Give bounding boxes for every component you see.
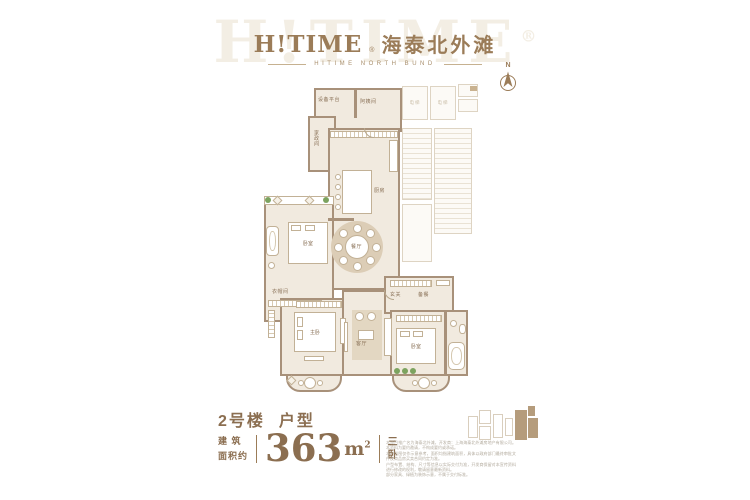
bathtub-inner [269,231,276,251]
wall [328,218,354,221]
area-unit-letter: m [344,438,364,460]
wall [444,312,447,374]
console-cabinet [390,280,432,287]
building-label: 2号楼 [218,407,265,431]
elevator-shaft: 电梯 [430,86,456,120]
area-caption-line1: 建 筑 [218,434,248,448]
balcony-table [418,377,430,389]
bedroom-right-label: 卧室 [397,329,435,363]
area-caption: 建 筑 面积约 [218,434,248,463]
toilet [268,262,275,269]
brand-logo: H!TIME ® 海泰北外滩 [0,29,750,58]
bedroom-left-label: 卧室 [289,223,327,263]
master-bedroom-label: 主卧 [295,313,335,351]
elevator-label: 电梯 [410,100,421,106]
area-info: 建 筑 面积约 363 m2 三 卧 [218,432,398,465]
chair [339,229,348,238]
brand-subtitle: HITIME NORTH BUND [0,61,750,67]
shoe-cabinet [436,280,450,286]
brand-logo-cn: 海泰北外滩 [381,29,496,58]
balcony-table [304,377,316,389]
chair [372,243,381,252]
floorplan-poster: H!TIME® H!TIME ® 海泰北外滩 HITIME NORTH BUND… [0,0,750,500]
bed: 卧室 [396,328,436,364]
chair [366,229,375,238]
disclaimer-line: 户型布置、结构、尺寸等信息以实际交付为准，开发商保留对本宣传资料进行修改的权利，… [386,462,516,473]
divider-line [268,64,306,65]
nanny-room-label: 阿姨间 [360,98,377,105]
divider-line [256,435,257,463]
stool [335,204,341,210]
area-unit: m2 [344,438,370,460]
coffee-table [358,330,374,340]
divider-line [444,64,482,65]
area-value: 363 [265,432,342,465]
kitchen-island [342,170,372,214]
public-lobby [402,204,432,262]
wardrobe [296,301,342,308]
dining-label: 餐厅 [351,243,362,250]
wardrobe [396,315,442,322]
chair [353,262,362,271]
bed: 主卧 [294,312,336,352]
plant-icon [402,368,408,374]
stool [335,174,341,180]
stool [335,184,341,190]
disclaimer: 本项目推广名为海泰北外滩，开发商：上海海泰北外滩房地产有限公司。本资料为要约邀请… [386,440,516,478]
balcony-chair [412,380,418,386]
plant-icon [410,368,416,374]
chair [366,256,375,265]
keyplan-building-outline [493,414,503,438]
elevator-shaft: 电梯 [402,86,428,120]
chair [353,224,362,233]
divider-line [379,435,380,463]
toilet [459,324,466,334]
sink [450,320,457,327]
chair [334,243,343,252]
bathtub [266,226,279,256]
keyplan-building-outline [468,416,478,438]
balcony-chair [431,380,437,386]
plant-icon [394,368,400,374]
living-room-label: 客厅 [356,340,367,347]
compass: N [497,62,519,97]
area-caption-line2: 面积约 [218,449,248,463]
stairwell [434,128,472,234]
north-arrow-icon [498,70,518,92]
balcony-chair [298,380,304,386]
bathtub [448,342,465,370]
floor-plan: 电梯 电梯 [260,84,485,396]
armchair [367,312,376,321]
disclaimer-line: 本户型图仅作示意参考，面积均指建筑面积，具体以政府部门最终审批文件及商品房买卖合… [386,451,516,462]
tv-stand [344,322,348,352]
chair [339,256,348,265]
compass-north-label: N [497,62,519,69]
machine-room [458,99,478,112]
foyer-label: 玄关 [390,291,401,298]
area-unit-sup: 2 [364,440,370,450]
balcony-chair [317,380,323,386]
brand-logo-en: H!TIME [254,31,363,58]
brand-subtitle-text: HITIME NORTH BUND [314,61,435,67]
keyplan-highlight [515,410,527,440]
pantry-label: 备餐 [418,291,429,298]
elevator-label: 电梯 [438,100,449,106]
keyplan-building-outline [479,426,491,440]
bench [304,356,324,361]
disclaimer-line: 本项目推广名为海泰北外滩，开发商：上海海泰北外滩房地产有限公司。本资料为要约邀请… [386,440,516,451]
housekeeping-label: 家政间 [313,130,320,147]
equipment-platform-label: 设备平台 [318,96,340,103]
armchair [355,312,364,321]
bed: 卧室 [288,222,328,264]
plant-icon [323,197,329,203]
wall [354,88,357,118]
stairwell [402,128,432,200]
keyplan-building-outline [479,410,491,424]
plant-icon [265,197,271,203]
keyplan-highlight [528,406,535,416]
keyplan-highlight [528,418,538,438]
plan-tag [470,86,477,91]
keyplan-building-outline [505,418,513,436]
stool [335,194,341,200]
cloakroom-label: 衣帽间 [272,288,289,295]
kitchen-cabinet [389,140,398,172]
disclaimer-line: 部分家具、绿植为装饰示意，不属于交付标准。 [386,472,516,477]
bathtub-inner [451,347,462,365]
kitchen-label: 厨房 [374,187,385,194]
sofa [384,318,392,356]
registered-mark-icon: ® [369,47,374,54]
wardrobe [268,310,275,338]
